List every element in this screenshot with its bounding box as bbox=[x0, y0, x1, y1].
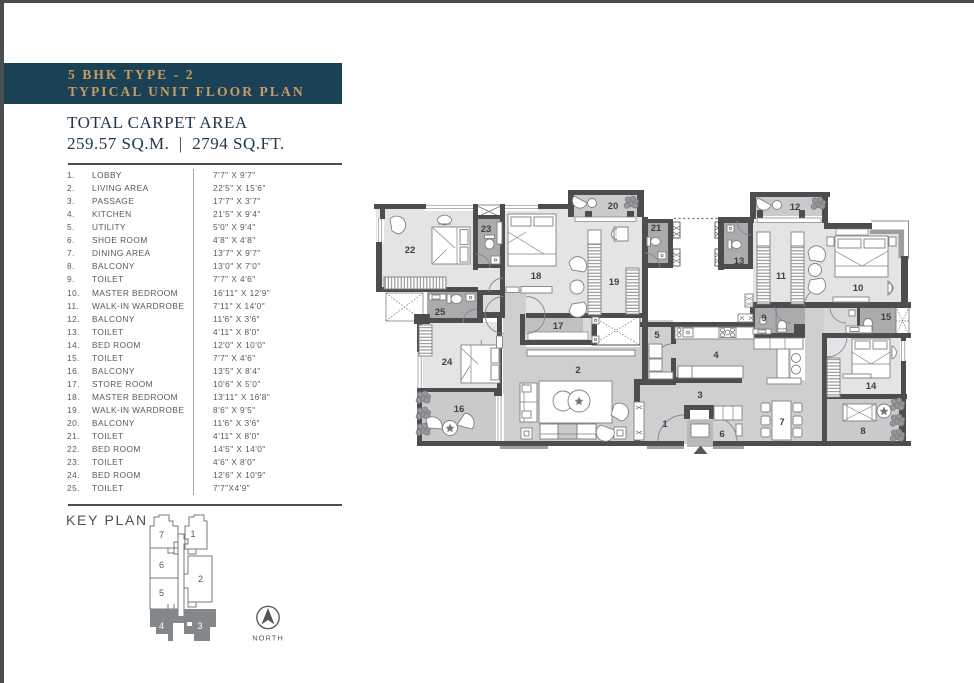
svg-text:3: 3 bbox=[197, 621, 202, 631]
svg-text:24: 24 bbox=[442, 357, 453, 368]
svg-text:7: 7 bbox=[779, 417, 784, 428]
svg-text:3: 3 bbox=[697, 390, 702, 401]
svg-text:21: 21 bbox=[651, 223, 662, 234]
svg-text:5: 5 bbox=[654, 330, 660, 341]
svg-text:9: 9 bbox=[761, 313, 766, 324]
svg-text:1: 1 bbox=[662, 419, 668, 430]
svg-text:6: 6 bbox=[159, 560, 164, 570]
svg-text:18: 18 bbox=[531, 271, 542, 282]
svg-text:15: 15 bbox=[881, 312, 892, 323]
svg-text:17: 17 bbox=[553, 321, 564, 332]
svg-text:14: 14 bbox=[866, 381, 877, 392]
svg-text:16: 16 bbox=[454, 404, 465, 415]
svg-text:25: 25 bbox=[435, 307, 446, 318]
svg-text:13: 13 bbox=[734, 256, 745, 267]
svg-text:22: 22 bbox=[405, 245, 416, 256]
svg-text:19: 19 bbox=[609, 277, 620, 288]
svg-text:11: 11 bbox=[776, 271, 787, 282]
svg-text:7: 7 bbox=[159, 530, 164, 540]
svg-text:23: 23 bbox=[481, 224, 492, 235]
svg-text:8: 8 bbox=[860, 426, 865, 437]
svg-text:5: 5 bbox=[159, 588, 164, 598]
svg-text:2: 2 bbox=[575, 365, 580, 376]
svg-text:4: 4 bbox=[713, 350, 719, 361]
svg-text:2: 2 bbox=[198, 574, 203, 584]
svg-text:NORTH: NORTH bbox=[252, 634, 284, 643]
svg-text:20: 20 bbox=[608, 201, 619, 212]
svg-text:12: 12 bbox=[790, 202, 801, 213]
svg-text:10: 10 bbox=[853, 283, 864, 294]
svg-text:1: 1 bbox=[190, 529, 195, 539]
svg-text:6: 6 bbox=[719, 429, 724, 440]
svg-text:4: 4 bbox=[159, 621, 164, 631]
